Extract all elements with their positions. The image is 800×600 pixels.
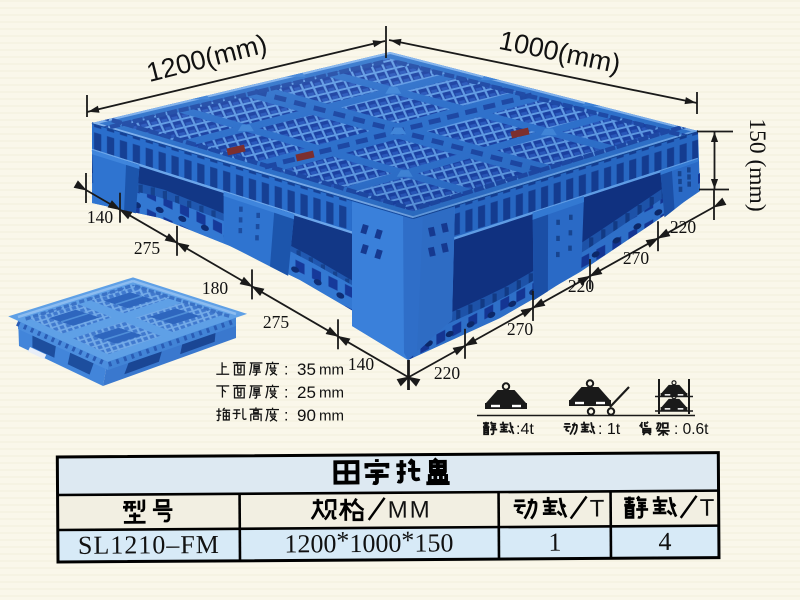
svg-text:140: 140: [348, 354, 375, 374]
svg-text:220: 220: [434, 363, 461, 383]
svg-text:4: 4: [658, 527, 671, 556]
svg-text:35: 35: [297, 360, 316, 379]
svg-text:270: 270: [507, 319, 534, 339]
svg-text:T: T: [590, 495, 605, 522]
svg-text::4t: :4t: [516, 421, 534, 438]
svg-text:275: 275: [263, 312, 290, 332]
svg-text:180: 180: [202, 278, 229, 298]
svg-text:SL1210–FM: SL1210–FM: [78, 530, 220, 560]
svg-text::: :: [284, 362, 288, 379]
svg-text:mm: mm: [319, 385, 344, 402]
svg-text:mm: mm: [319, 408, 344, 425]
svg-text:150 (mm): 150 (mm): [744, 118, 770, 211]
svg-text:1: 1: [548, 528, 561, 557]
svg-text:: 1t: : 1t: [598, 421, 621, 438]
svg-text:mm: mm: [319, 362, 344, 379]
svg-text:275: 275: [134, 238, 161, 258]
svg-text:: 0.6t: : 0.6t: [674, 421, 709, 438]
svg-text::: :: [284, 408, 288, 425]
svg-text:MM: MM: [388, 497, 432, 524]
svg-text::: :: [284, 385, 288, 402]
svg-text:90: 90: [297, 406, 316, 425]
svg-text:140: 140: [87, 207, 114, 227]
svg-text:220: 220: [670, 217, 697, 237]
svg-text:1200*1000*150: 1200*1000*150: [284, 525, 453, 558]
svg-text:25: 25: [297, 383, 316, 402]
svg-text:220: 220: [568, 276, 595, 296]
svg-text:270: 270: [623, 248, 650, 268]
svg-text:T: T: [700, 495, 715, 522]
